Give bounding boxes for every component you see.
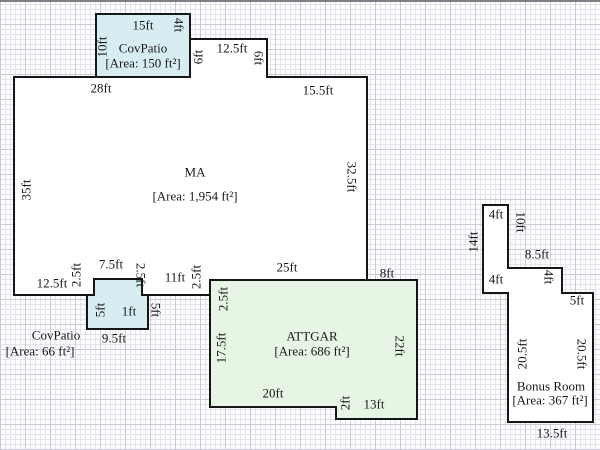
sketch-canvas: 15ft4ft10ftCovPatio[Area: 150 ft²]6ft12.… bbox=[0, 0, 600, 450]
room-attgar[interactable] bbox=[210, 280, 417, 419]
room-bonus-room[interactable] bbox=[483, 205, 593, 422]
room-covpatio-top[interactable] bbox=[96, 14, 190, 77]
floorplan-svg bbox=[0, 2, 600, 450]
room-covpatio-bottom[interactable] bbox=[87, 279, 148, 329]
